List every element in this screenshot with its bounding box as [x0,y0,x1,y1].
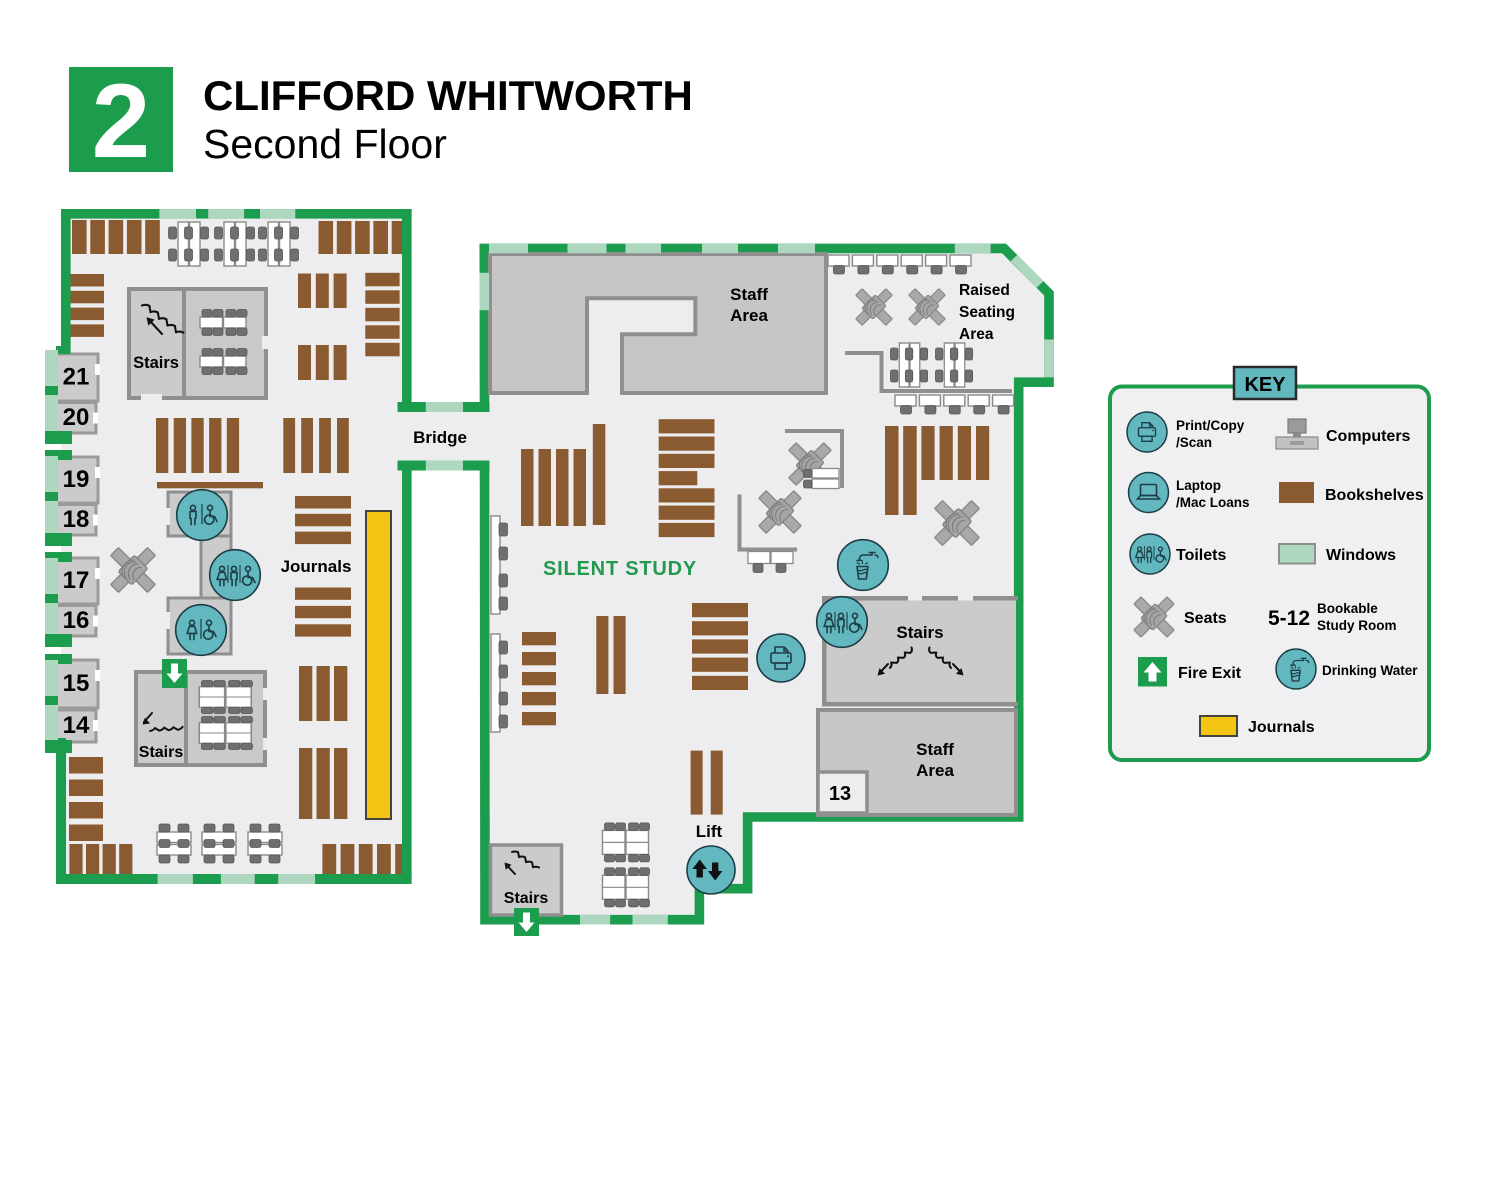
svg-text:SILENT STUDY: SILENT STUDY [543,558,697,580]
svg-text:Stairs: Stairs [133,354,179,372]
svg-text:Journals: Journals [281,557,352,576]
svg-text:Area: Area [916,761,954,780]
svg-text:Staff: Staff [730,285,768,304]
svg-text:Drinking Water: Drinking Water [1322,663,1418,678]
svg-text:16: 16 [63,607,90,634]
svg-text:/Mac Loans: /Mac Loans [1176,495,1250,510]
svg-text:Second Floor: Second Floor [203,121,447,167]
svg-text:Windows: Windows [1326,547,1396,564]
svg-text:Fire Exit: Fire Exit [1178,665,1242,682]
svg-text:2: 2 [92,63,150,180]
svg-text:17: 17 [63,567,90,594]
svg-text:15: 15 [63,670,90,697]
svg-text:Print/Copy: Print/Copy [1176,418,1245,433]
svg-text:Area: Area [959,326,994,343]
svg-text:13: 13 [829,783,851,805]
svg-text:Seats: Seats [1184,610,1227,627]
svg-text:Journals: Journals [1248,719,1315,736]
svg-text:Bridge: Bridge [413,428,467,447]
svg-text:Bookable: Bookable [1317,601,1378,616]
svg-text:Stairs: Stairs [504,890,549,907]
svg-text:5-12: 5-12 [1268,607,1310,630]
svg-text:Staff: Staff [916,740,954,759]
svg-text:Bookshelves: Bookshelves [1325,487,1424,504]
svg-text:21: 21 [63,364,90,391]
svg-text:19: 19 [63,466,90,493]
svg-text:Laptop: Laptop [1176,478,1221,493]
svg-text:Toilets: Toilets [1176,547,1226,564]
svg-text:KEY: KEY [1244,374,1286,396]
svg-text:Seating: Seating [959,304,1015,321]
svg-text:14: 14 [63,712,90,739]
svg-text:Raised: Raised [959,282,1010,299]
svg-text:Computers: Computers [1326,428,1411,445]
svg-text:20: 20 [63,404,90,431]
svg-text:Area: Area [730,306,768,325]
svg-text:/Scan: /Scan [1176,435,1212,450]
svg-text:18: 18 [63,506,90,533]
svg-text:Stairs: Stairs [139,744,184,761]
svg-text:Stairs: Stairs [896,623,943,642]
svg-text:Study Room: Study Room [1317,618,1397,633]
svg-text:Lift: Lift [696,822,723,841]
svg-text:CLIFFORD WHITWORTH: CLIFFORD WHITWORTH [203,72,693,119]
